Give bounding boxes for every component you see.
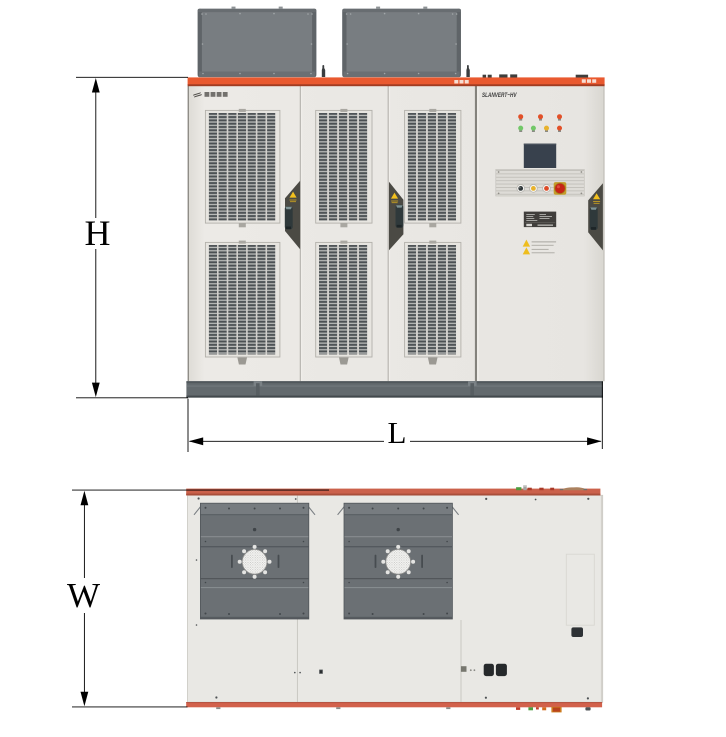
svg-text:L: L: [388, 415, 407, 450]
svg-text:W: W: [67, 576, 100, 615]
svg-text:SLANVERT~HV: SLANVERT~HV: [482, 92, 517, 99]
svg-text:H: H: [85, 213, 111, 253]
